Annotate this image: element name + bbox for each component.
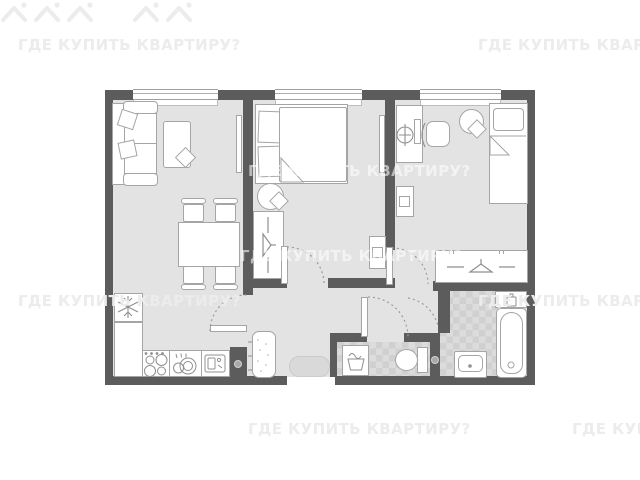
house-icon [66,0,94,22]
door-leaf-wc [361,297,368,337]
wall-wc-top-b [404,333,430,342]
wall-living-bedroom [243,98,253,295]
toilet-tank [417,347,428,373]
wall-wc-left [330,333,337,377]
house-icon [0,0,28,22]
watermark-text: ГДЕ КУПИТЬ КВАРТИРУ? [572,420,640,438]
toilet-bowl [395,349,418,371]
wall-right [527,90,535,385]
dresser-handle [399,196,410,207]
sofa-pillow [117,139,137,159]
stove [142,350,170,377]
washing-machine [201,350,230,377]
dining-chair [183,204,204,222]
bed-pillow [493,108,524,131]
wardrobe-master [253,211,284,279]
doormat [289,356,330,377]
window-living [133,89,218,100]
sofa-armrest-bottom [123,173,158,186]
flush-button-icon [431,356,439,364]
kitchen-sink [169,350,202,377]
house-icon [165,0,193,22]
watermark-text: ГДЕ КУПИТЬ КВАРТИРУ? [248,420,471,438]
radiator [252,331,276,378]
wall-bedroom-bottom-b [328,278,395,288]
dining-chair [183,266,204,284]
kitchen-counter [114,322,143,377]
door-leaf-living [210,325,247,332]
wardrobe-door-tick [499,250,500,254]
house-icon [33,0,61,22]
dining-chair [215,266,236,284]
desk-chair [426,121,450,147]
watermark-text: ГДЕ КУПИТЬ КВАРТИРУ? [18,36,241,54]
bathtub-inner [500,312,523,374]
laundry-basket-box [342,345,369,376]
watermark-text: ГДЕ КУПИТЬ КВАРТИРУ? [240,247,463,265]
wall-bathroom-left [438,281,450,333]
bed-pillow [257,111,281,144]
bathroom-sink-basin [458,355,483,372]
watermark-text: ГДЕ КУПИТЬ КВАРТИРУ? [478,292,640,310]
dining-chair-back [181,284,206,290]
floor-plan-screenshot: ГДЕ КУПИТЬ КВАРТИРУ? ГДЕ КУПИТЬ КВАРТИРУ… [0,0,640,480]
tv-living [236,115,242,173]
house-icon [132,0,160,22]
wardrobe-door-tick [503,250,504,254]
watermark-text: ГДЕ КУПИТЬ КВАРТИРУ? [18,292,241,310]
shaft-valve-icon [234,360,242,368]
watermark-text: ГДЕ КУПИТЬ КВАРТИРУ? [248,162,471,180]
window-bedroom-master [275,89,362,100]
window-bedroom-second [420,89,501,100]
watermark-text: ГДЕ КУПИТЬ КВАРТИРУ? [478,36,640,54]
dining-chair [215,204,236,222]
wall-wc-bathroom-divider [430,333,440,377]
dining-chair-back [213,284,238,290]
dining-table [178,222,240,267]
house-icon [99,0,127,22]
desk-monitor [414,119,421,144]
